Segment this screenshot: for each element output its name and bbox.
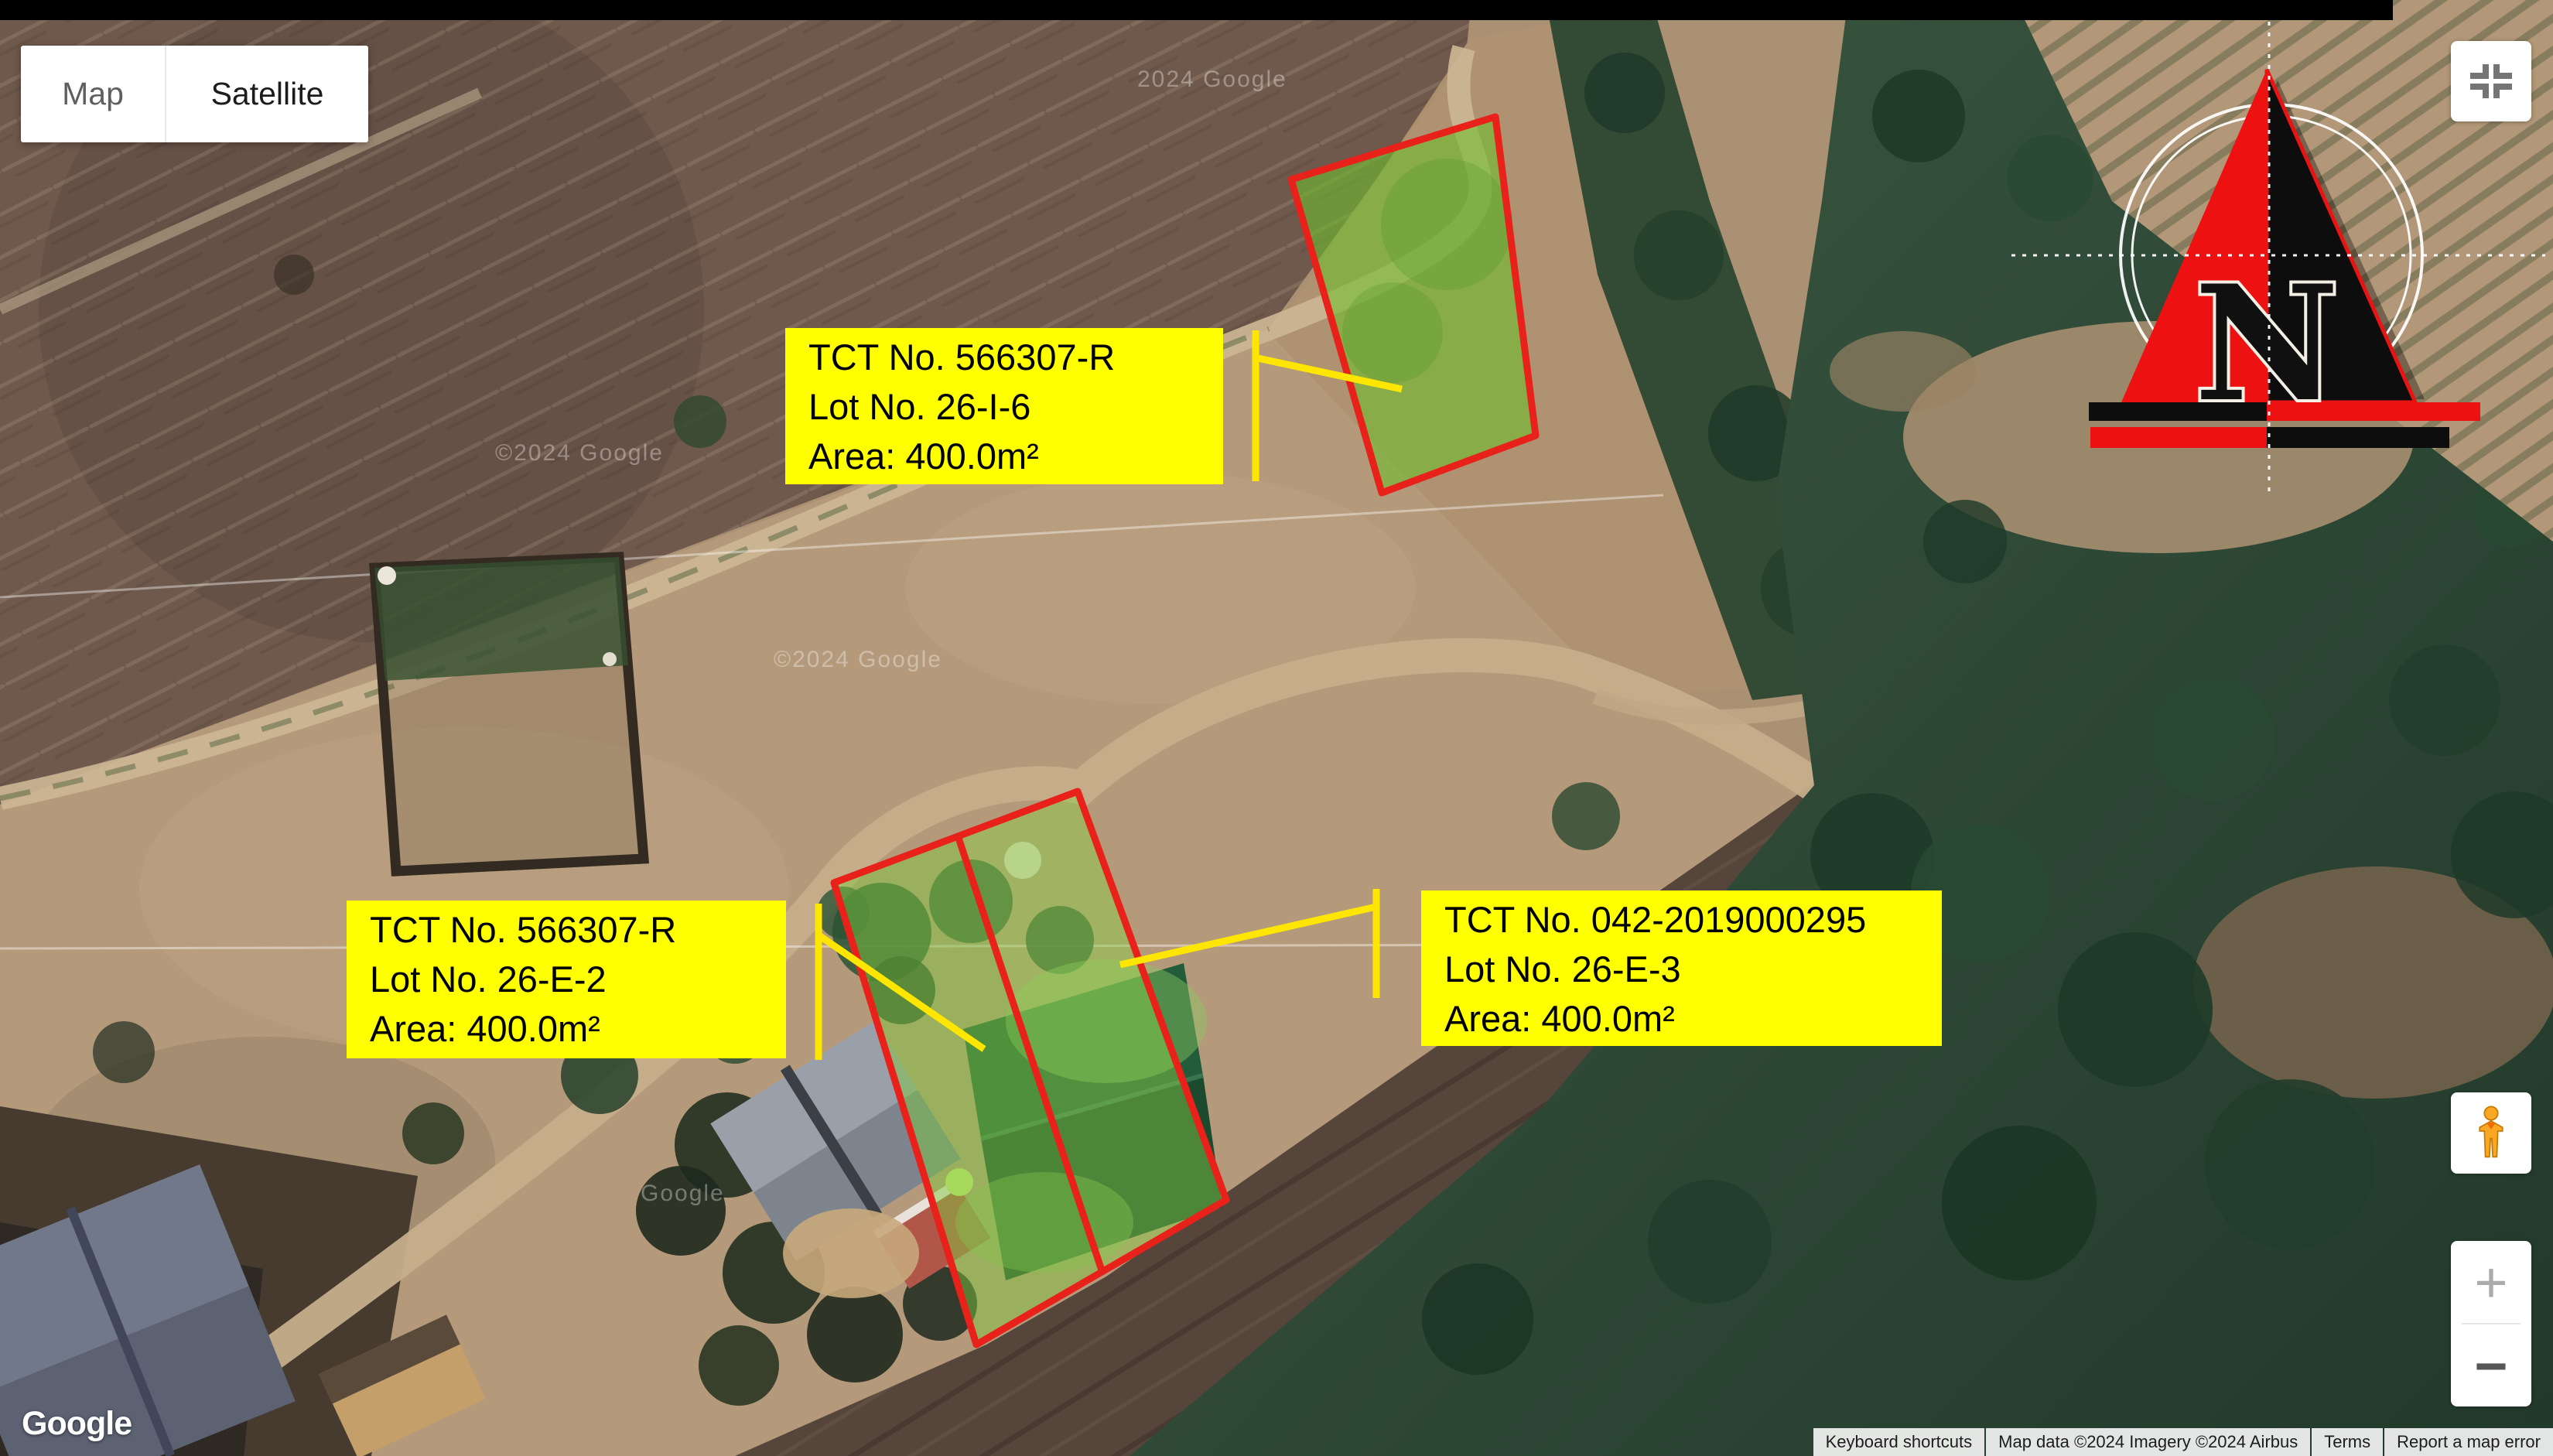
- lot-label-lot-no: Lot No. 26-E-2: [370, 955, 786, 1004]
- report-map-error-link[interactable]: Report a map error: [2384, 1428, 2553, 1456]
- map-data-attribution: Map data ©2024 Imagery ©2024 Airbus: [1986, 1428, 2310, 1456]
- lot-label-area: Area: 400.0m²: [808, 432, 1223, 481]
- lot-label-area: Area: 400.0m²: [1444, 994, 1942, 1044]
- lot-label-26-i-6: TCT No. 566307-R Lot No. 26-I-6 Area: 40…: [785, 328, 1223, 484]
- map-type-control: Map Satellite: [21, 46, 368, 142]
- zoom-control: + −: [2451, 1241, 2531, 1406]
- terms-link[interactable]: Terms: [2312, 1428, 2383, 1456]
- fullscreen-exit-icon: [2469, 63, 2514, 100]
- google-logo[interactable]: Google: [22, 1405, 132, 1443]
- lot-label-tct: TCT No. 566307-R: [370, 905, 786, 955]
- letterbox-bar: [0, 0, 2393, 20]
- svg-text:©2024 Google: ©2024 Google: [495, 440, 664, 466]
- lot-label-lot-no: Lot No. 26-E-3: [1444, 945, 1942, 994]
- map-type-satellite-button[interactable]: Satellite: [165, 46, 368, 142]
- lot-label-26-e-2: TCT No. 566307-R Lot No. 26-E-2 Area: 40…: [347, 901, 786, 1058]
- lot-label-lot-no: Lot No. 26-I-6: [808, 382, 1223, 432]
- svg-text:©2024 Google: ©2024 Google: [774, 647, 942, 672]
- map-viewport: N 2024 Google ©2024 Google Google ©2024 …: [0, 0, 2553, 1456]
- zoom-out-button[interactable]: −: [2451, 1324, 2531, 1406]
- satellite-imagery[interactable]: N 2024 Google ©2024 Google Google ©2024 …: [0, 0, 2553, 1456]
- pegman-icon: [2471, 1105, 2511, 1162]
- compass-north-label: N: [2194, 251, 2339, 437]
- pegman-button[interactable]: [2451, 1092, 2531, 1174]
- lot-label-area: Area: 400.0m²: [370, 1004, 786, 1054]
- lot-label-26-e-3: TCT No. 042-2019000295 Lot No. 26-E-3 Ar…: [1421, 890, 1942, 1046]
- map-type-map-button[interactable]: Map: [21, 46, 165, 142]
- fullscreen-button[interactable]: [2451, 41, 2531, 121]
- keyboard-shortcuts-button[interactable]: Keyboard shortcuts: [1813, 1428, 1985, 1456]
- attribution-bar: Keyboard shortcuts Map data ©2024 Imager…: [1813, 1428, 2553, 1456]
- svg-text:2024 Google: 2024 Google: [1137, 67, 1287, 92]
- walled-compound: [374, 557, 644, 871]
- lot-label-tct: TCT No. 042-2019000295: [1444, 895, 1942, 945]
- zoom-in-button[interactable]: +: [2451, 1241, 2531, 1323]
- lot-label-tct: TCT No. 566307-R: [808, 333, 1223, 382]
- svg-text:Google: Google: [641, 1181, 725, 1206]
